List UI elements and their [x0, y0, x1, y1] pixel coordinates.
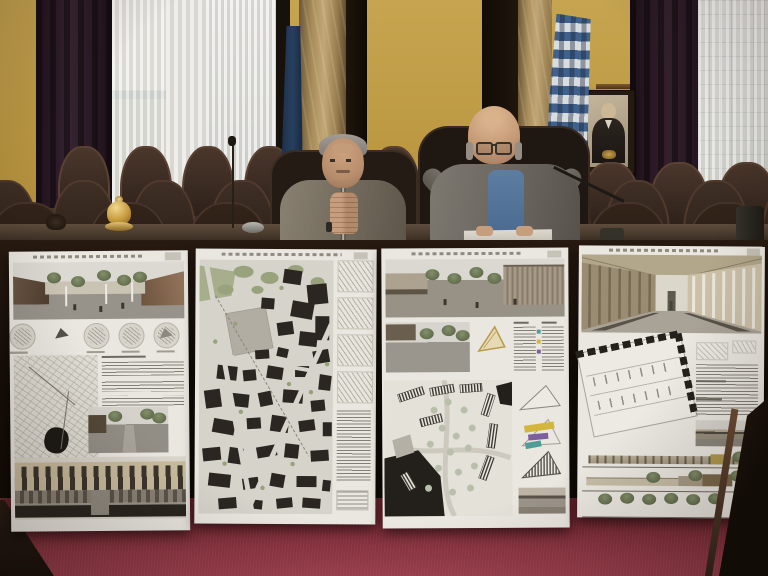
tree-blob [47, 272, 61, 283]
eyeglasses [476, 142, 512, 153]
tree-trunk [131, 282, 133, 302]
legend-heading [514, 322, 529, 324]
session-bell [106, 196, 132, 232]
elevation-strip [582, 451, 758, 468]
official-right [420, 106, 584, 248]
text-lines [336, 410, 370, 482]
figure [73, 304, 76, 310]
desk-object [46, 214, 66, 230]
pillars [15, 465, 186, 490]
legend-column [514, 322, 536, 374]
figure [514, 299, 517, 305]
text-lines [696, 364, 758, 416]
hair-side [466, 142, 473, 160]
plaza-rendering [13, 261, 184, 319]
sketch-map [14, 355, 99, 464]
hand [476, 226, 493, 236]
figure-ground-map [198, 260, 333, 515]
board-logo [547, 251, 561, 258]
tree-blob [642, 494, 656, 505]
center-path [91, 490, 109, 515]
axon-sketch [337, 371, 373, 403]
concept-circle [83, 323, 109, 349]
dark-triangle-diagram [53, 327, 69, 341]
tree-blob [598, 493, 612, 504]
figure [476, 302, 479, 308]
paragraph-gap [102, 391, 184, 396]
board-title-line [609, 249, 719, 253]
tree-blob [425, 269, 439, 280]
tree-blob [456, 330, 470, 341]
presentation-board-1 [9, 250, 190, 532]
tree-blob [686, 494, 700, 505]
building [13, 274, 49, 304]
hair-side [515, 142, 522, 160]
figure [444, 299, 447, 305]
tree-blob [469, 267, 483, 278]
tree-blob [442, 325, 456, 336]
colonnade-elevation [15, 456, 187, 519]
legend-column [542, 322, 564, 374]
hand [516, 226, 533, 236]
caption [157, 350, 175, 352]
triangle-diagram [476, 324, 508, 356]
council-chamber-photo: ΙΩΑΝΝΙΝΑ [0, 0, 768, 576]
building [88, 415, 106, 433]
tree-blob [133, 272, 147, 283]
wall-sconce [602, 150, 616, 159]
plan-stall-row [593, 361, 677, 387]
axon-sketch [337, 334, 373, 366]
eyes [330, 159, 356, 162]
desk-equipment [736, 206, 764, 242]
tree-blob [688, 470, 702, 481]
tree-blob [71, 276, 85, 287]
bald-head [468, 106, 520, 164]
text-lines [102, 361, 184, 406]
massing-diagram-column [516, 380, 568, 516]
legend-lines [514, 327, 536, 372]
caption [10, 352, 28, 354]
tree-blob [646, 472, 660, 483]
microphone-stand [232, 144, 234, 228]
paragraph-gap [102, 375, 184, 380]
map-line [28, 366, 75, 405]
exploded-triangle-diagrams [516, 382, 568, 486]
mustache [336, 170, 350, 173]
canopy-building [385, 273, 427, 289]
plaza-rendering [385, 259, 564, 318]
clasped-hands [330, 192, 358, 234]
text-heading [696, 398, 722, 400]
microphone-head [228, 136, 236, 146]
tree-trunk [65, 286, 67, 306]
presentation-board-3 [381, 248, 569, 529]
forehead [332, 143, 354, 153]
figure [99, 306, 102, 312]
legend-chip-yellow [537, 340, 541, 344]
concept-circle [118, 323, 144, 349]
axon-sketch [337, 297, 373, 329]
tree-blob [420, 328, 434, 339]
plan-stall-row [597, 384, 681, 410]
canopy-shadow [385, 289, 427, 294]
wall-trim [596, 84, 634, 89]
presentation-board-2 [194, 249, 376, 525]
tree-blob [152, 412, 166, 423]
legend-box [336, 490, 368, 510]
interior-hall-perspective [581, 254, 762, 333]
glasses-bridge [491, 144, 497, 146]
legend [514, 322, 565, 374]
text-heading [102, 356, 146, 358]
tree-trunk [105, 284, 107, 304]
path [122, 425, 136, 453]
tilted-floor-plan [576, 332, 697, 438]
legend-chip-purple [537, 350, 541, 354]
tree-blob [664, 493, 678, 504]
description-text [696, 364, 758, 416]
site-plan [384, 380, 513, 517]
board-title-line [33, 255, 143, 259]
legend-heading [542, 322, 557, 324]
microphone-boom-base [600, 228, 624, 240]
street-rendering [386, 322, 470, 372]
board-logo [354, 252, 368, 259]
legend-lines [542, 327, 564, 372]
small-sketch [696, 342, 728, 360]
board-logo [165, 252, 181, 260]
tree-blob [447, 273, 461, 284]
tree-blob [487, 273, 501, 284]
concept-circle [9, 324, 35, 350]
board-title-line [411, 252, 523, 256]
tree-blob [97, 270, 111, 281]
site-marker [42, 425, 71, 455]
official-left [272, 134, 412, 242]
tree-blob [620, 493, 634, 504]
axonometric-sketch-column [336, 260, 373, 514]
caption [87, 351, 105, 353]
bell-base [105, 222, 133, 231]
plan-edge-blocks [575, 330, 680, 358]
building [141, 271, 184, 305]
wristwatch [326, 222, 332, 232]
street-rendering [88, 406, 168, 453]
canopy [586, 477, 678, 486]
canopy [386, 324, 416, 340]
tree-blob [117, 275, 131, 286]
board-title-line [222, 253, 342, 257]
plan-edge-blocks [675, 333, 699, 417]
legend-chip-teal [537, 330, 541, 334]
tree-blob [108, 411, 122, 422]
description-text [102, 355, 184, 406]
text-heading [696, 380, 726, 382]
baseline [582, 466, 758, 468]
axon-sketch [337, 260, 373, 292]
small-elevation-photo [519, 488, 566, 514]
small-sketch [732, 340, 756, 353]
figure [121, 303, 124, 309]
caption [122, 351, 140, 353]
slatted-facade [503, 265, 564, 305]
elevation-strip [582, 471, 758, 492]
microphone-base [242, 222, 264, 233]
